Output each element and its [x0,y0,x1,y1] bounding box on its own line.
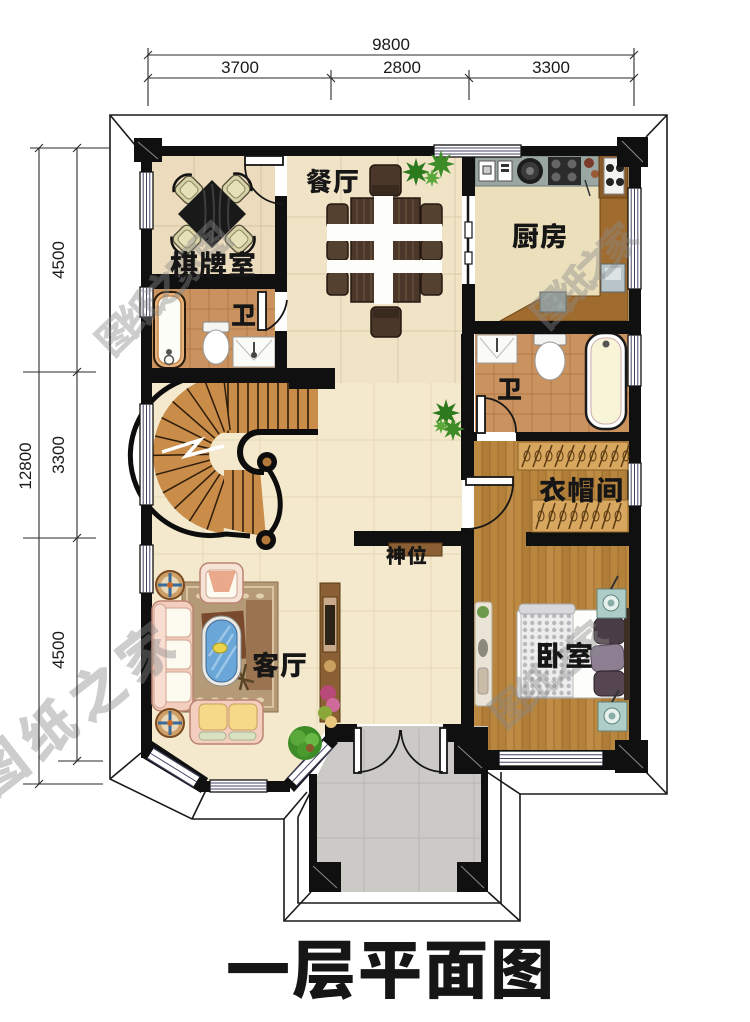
svg-text:2800: 2800 [383,58,421,77]
svg-text:12800: 12800 [16,442,35,489]
svg-text:3300: 3300 [532,58,570,77]
svg-text:4500: 4500 [49,241,68,279]
svg-text:9800: 9800 [372,35,410,54]
svg-text:4500: 4500 [49,631,68,669]
svg-text:3300: 3300 [49,436,68,474]
svg-text:3700: 3700 [221,58,259,77]
